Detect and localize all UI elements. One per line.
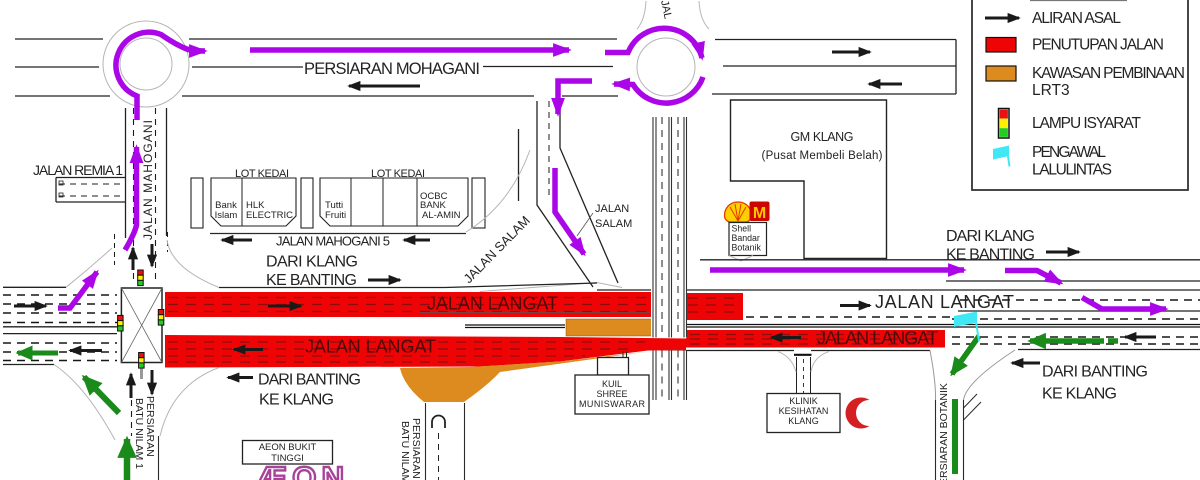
svg-text:JALAN REMIA 1: JALAN REMIA 1: [33, 162, 123, 178]
svg-text:PENUTUPAN JALAN: PENUTUPAN JALAN: [1032, 37, 1164, 54]
svg-text:JALAN MAHOGANI: JALAN MAHOGANI: [141, 120, 155, 240]
svg-text:SHREE: SHREE: [596, 389, 627, 399]
svg-text:Shell: Shell: [732, 224, 752, 234]
svg-text:JALAN LANGAT: JALAN LANGAT: [427, 294, 558, 314]
svg-text:Botanik: Botanik: [732, 243, 762, 253]
svg-text:BATU NILAM: BATU NILAM: [399, 421, 411, 480]
svg-text:AL-AMIN: AL-AMIN: [422, 210, 461, 221]
svg-text:Islam: Islam: [215, 210, 238, 221]
svg-text:DARI KLANG: DARI KLANG: [266, 254, 358, 271]
svg-text:Fruiti: Fruiti: [325, 210, 346, 221]
svg-text:Bandar: Bandar: [732, 233, 760, 243]
svg-text:JALAN: JALAN: [595, 203, 629, 215]
svg-text:KESIHATAN: KESIHATAN: [779, 406, 829, 416]
svg-text:PERSIARAN BOTANIK: PERSIARAN BOTANIK: [938, 383, 950, 480]
svg-text:ÆON: ÆON: [256, 460, 344, 480]
svg-text:PENGAWAL: PENGAWAL: [1032, 144, 1106, 161]
svg-text:KAWASAN PEMBINAAN: KAWASAN PEMBINAAN: [1032, 65, 1185, 82]
svg-text:M: M: [753, 205, 766, 222]
svg-text:JALAN LANGAT: JALAN LANGAT: [817, 328, 938, 348]
svg-text:AEON BUKIT: AEON BUKIT: [259, 442, 317, 453]
svg-text:JALAN LANGAT: JALAN LANGAT: [875, 292, 1014, 312]
svg-text:(Pusat Membeli Belah): (Pusat Membeli Belah): [762, 150, 883, 162]
svg-text:DARI BANTING: DARI BANTING: [1042, 364, 1148, 381]
svg-text:SALAM: SALAM: [595, 218, 632, 230]
svg-text:ELECTRIC: ELECTRIC: [246, 210, 293, 221]
svg-text:KE BANTING: KE BANTING: [946, 247, 1035, 264]
svg-text:GM KLANG: GM KLANG: [791, 130, 854, 144]
svg-text:ALIRAN ASAL: ALIRAN ASAL: [1032, 10, 1121, 27]
svg-text:BATU NILAM 1: BATU NILAM 1: [133, 398, 145, 469]
svg-text:LRT3: LRT3: [1032, 82, 1070, 99]
svg-text:PERSIARAN MOHAGANI: PERSIARAN MOHAGANI: [304, 60, 480, 78]
svg-text:KLINIK: KLINIK: [789, 396, 818, 406]
svg-text:KE KLANG: KE KLANG: [259, 392, 334, 409]
svg-text:KE BANTING: KE BANTING: [266, 272, 357, 289]
svg-text:JALAN MAHOGANI 5: JALAN MAHOGANI 5: [276, 234, 390, 249]
svg-text:MUNISWARAR: MUNISWARAR: [579, 399, 646, 409]
svg-text:KLANG: KLANG: [788, 416, 819, 426]
svg-text:DARI KLANG: DARI KLANG: [946, 228, 1035, 245]
svg-text:KUIL: KUIL: [602, 379, 622, 389]
svg-text:JALAN LANGAT: JALAN LANGAT: [305, 337, 436, 357]
svg-text:DARI BANTING: DARI BANTING: [258, 372, 361, 389]
svg-text:LALULINTAS: LALULINTAS: [1032, 162, 1112, 179]
svg-text:LAMPU ISYARAT: LAMPU ISYARAT: [1032, 115, 1142, 132]
svg-text:KE KLANG: KE KLANG: [1042, 386, 1117, 403]
